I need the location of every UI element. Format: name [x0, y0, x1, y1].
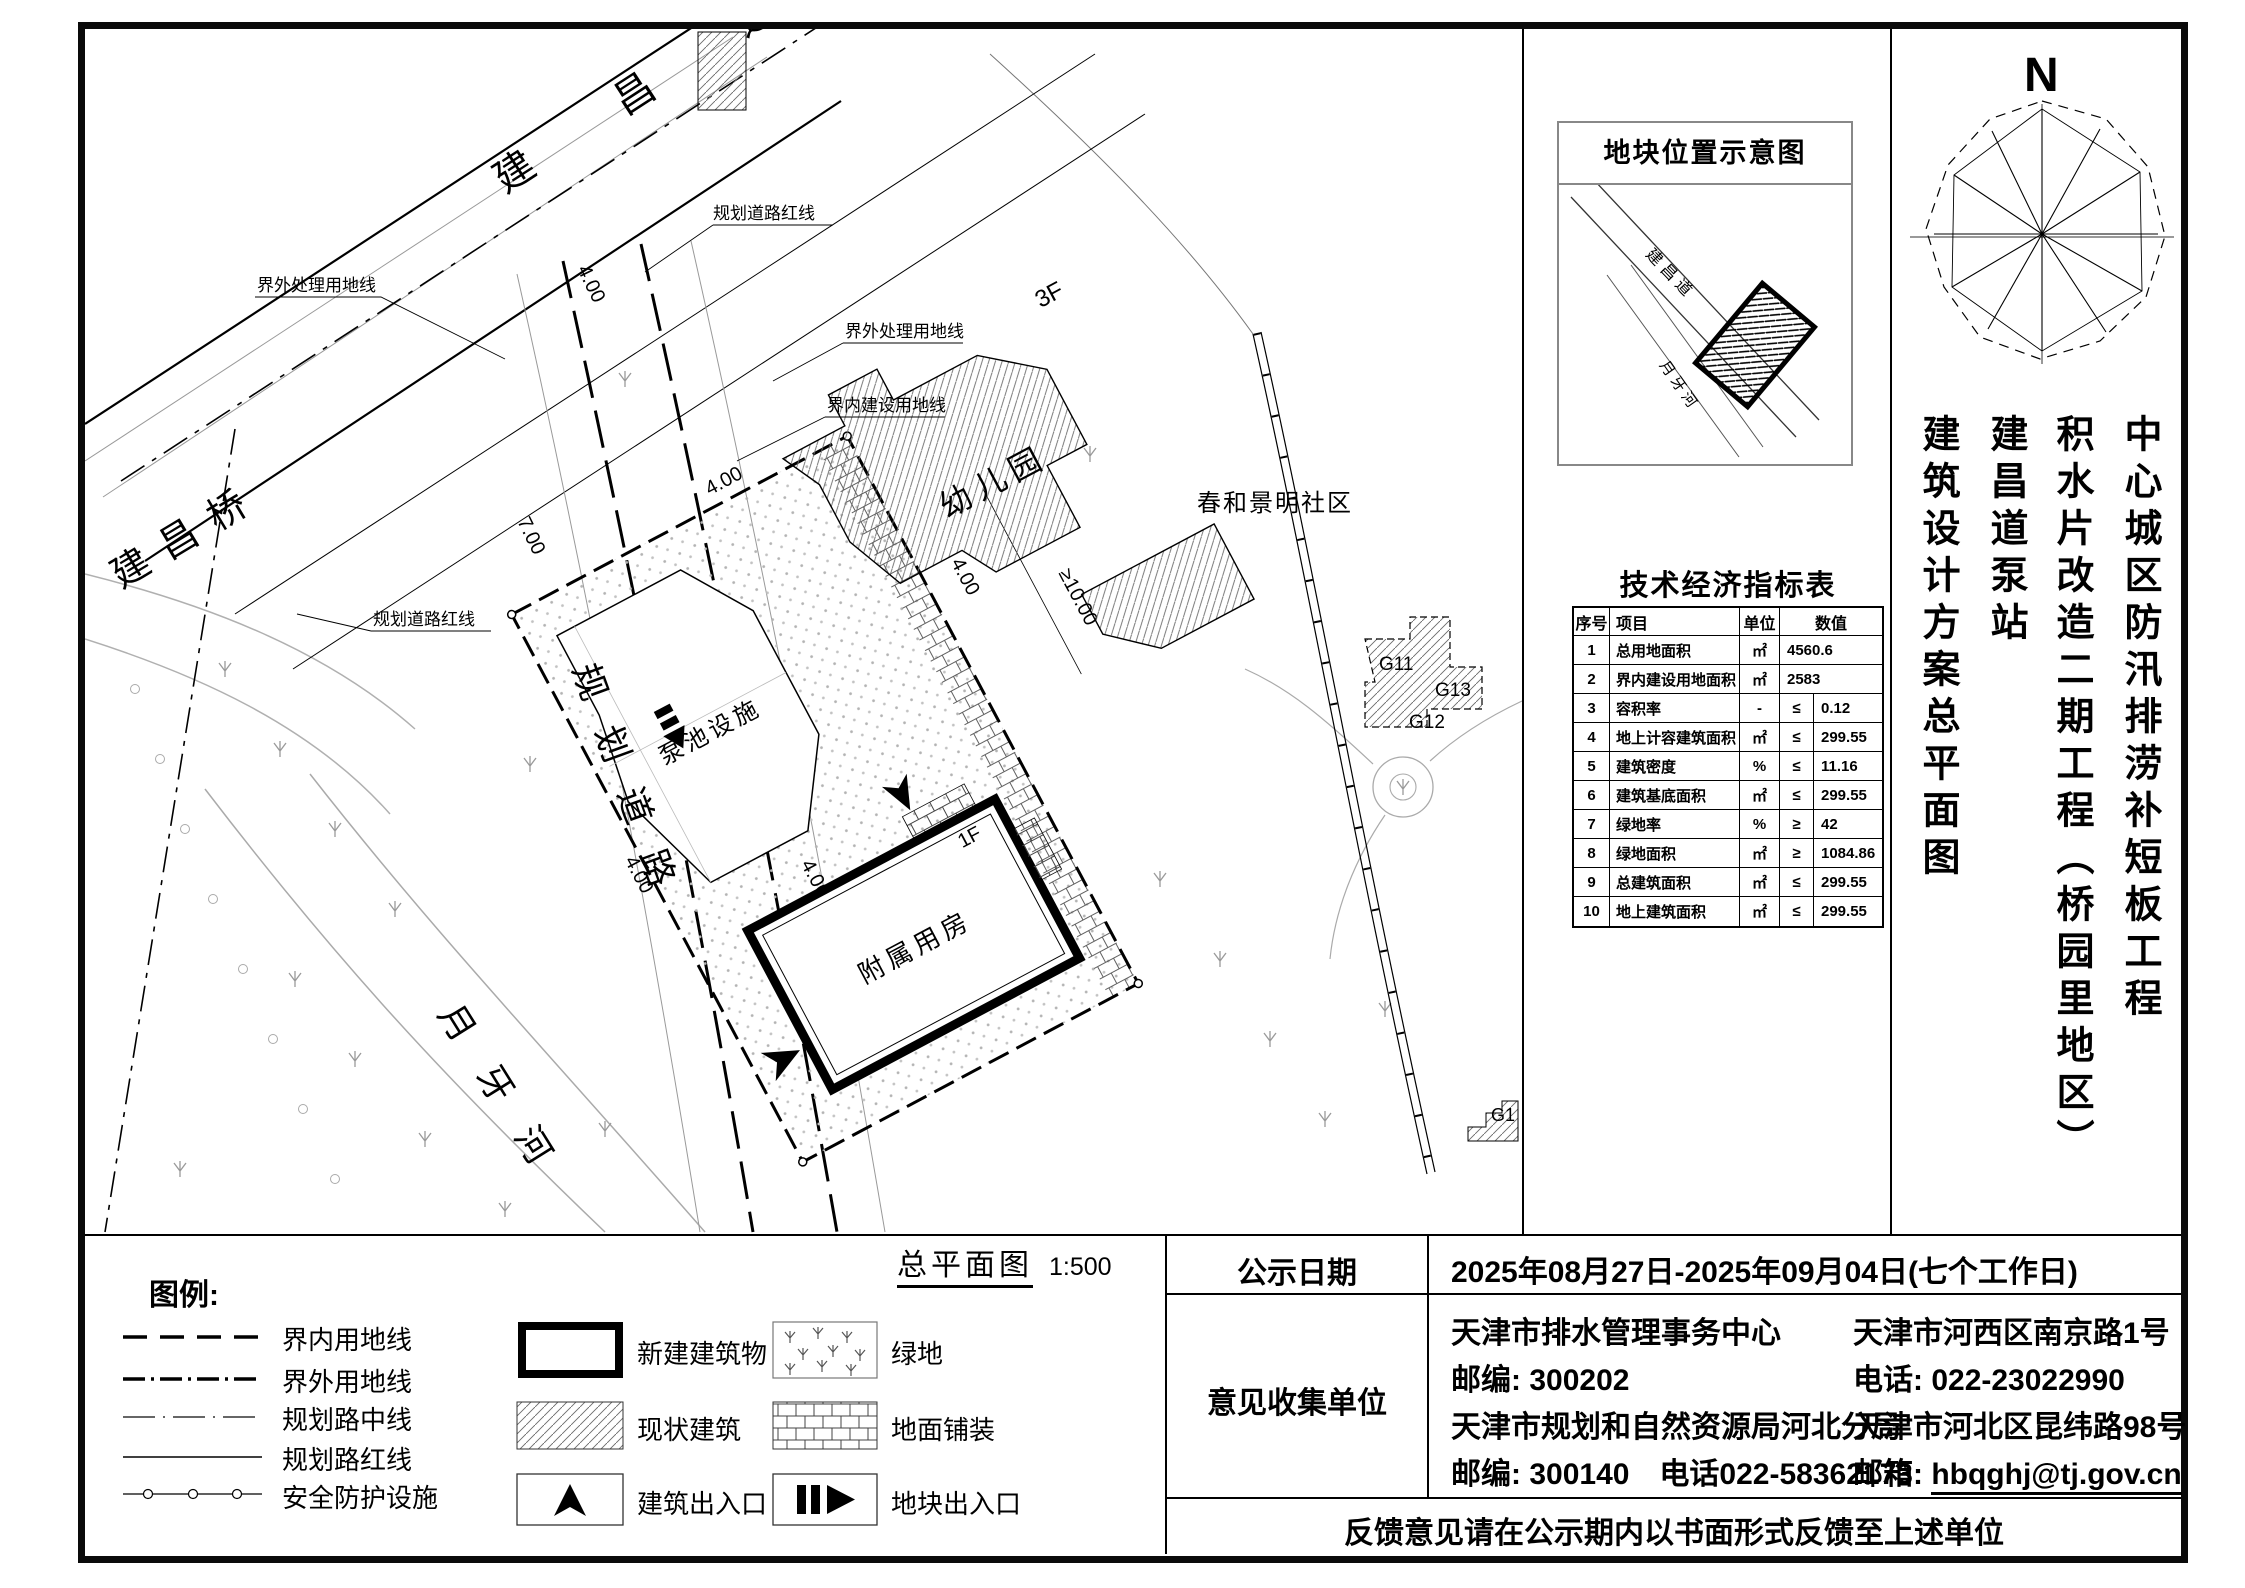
building-g11-label: G11 [1379, 654, 1414, 675]
tech-row-value: 299.55 [1814, 781, 1882, 810]
collector-address-1: 天津市河西区南京路1号 [1853, 1308, 2170, 1352]
tech-row-unit: ㎡ [1740, 897, 1780, 926]
tech-row-item: 绿地面积 [1610, 839, 1740, 868]
email-link[interactable]: hbqghj@tj.gov.cn [1931, 1458, 2181, 1495]
collector-postcode-2: 邮编: 300140 电话022-58362173 [1451, 1449, 1913, 1493]
dim-label: 4.00 [573, 262, 610, 307]
tech-row-value: 299.55 [1814, 723, 1882, 752]
tech-row-no: 5 [1574, 752, 1610, 781]
site-plan-drawing-area: 泵池设施 附属用房 1F 4.00 4.00 ≥10.00 4.00 [85, 29, 1524, 1234]
annotation-road-redline: 规划道路红线 [713, 204, 815, 223]
location-map: 建昌道 月牙河 [1559, 185, 1851, 464]
tech-row-value: 1084.86 [1814, 839, 1882, 868]
table-row-line [1167, 1497, 2181, 1499]
north-label: N [2024, 49, 2059, 102]
tech-header-unit: 单位 [1740, 608, 1780, 636]
tech-row-cmp: ≥ [1780, 810, 1814, 839]
kindergarten-floor-label: 3F [1031, 277, 1068, 314]
tech-row-no: 3 [1574, 694, 1610, 723]
building-g1-label: G1 [1491, 1105, 1515, 1125]
tech-row-unit: ㎡ [1740, 868, 1780, 897]
river-yueyahe-label: 月牙河 [430, 997, 579, 1202]
north-compass: N [1892, 29, 2181, 374]
legend-label-outer-boundary: 界外用地线 [282, 1362, 412, 1399]
publicity-date-label: 公示日期 [1167, 1248, 1427, 1292]
tech-row-no: 8 [1574, 839, 1610, 868]
community-label: 春和景明社区 [1197, 490, 1353, 517]
tech-row-item: 总建筑面积 [1610, 868, 1740, 897]
legend-label-existing-building: 现状建筑 [637, 1410, 741, 1447]
tech-row-item: 总用地面积 [1610, 636, 1740, 665]
tech-row-no: 10 [1574, 897, 1610, 926]
legend-label-new-building: 新建建筑物 [637, 1334, 767, 1371]
tech-row-unit: ㎡ [1740, 781, 1780, 810]
annotation-outer-boundary: 界外处理用地线 [257, 276, 376, 295]
tech-row-unit: - [1740, 694, 1780, 723]
collector-name-2: 天津市规划和自然资源局河北分局 [1451, 1402, 1901, 1446]
collector-postcode-1: 邮编: 300202 [1451, 1355, 1629, 1399]
tech-row-item: 地上计容建筑面积 [1610, 723, 1740, 752]
tech-row-value: 2583 [1780, 665, 1882, 694]
project-title-line-4: 建筑设计方案总平面图 [1914, 414, 1960, 884]
email-prefix: 邮箱: [1853, 1458, 1931, 1491]
road-jianchangdao-label: 建 昌 道 [486, 29, 822, 202]
tech-row-unit: ㎡ [1740, 723, 1780, 752]
tech-row-value: 42 [1814, 810, 1882, 839]
tech-row-cmp: ≤ [1780, 781, 1814, 810]
tech-row-item: 绿地率 [1610, 810, 1740, 839]
collector-label: 意见收集单位 [1167, 1378, 1427, 1422]
building-g13-label: G13 [1435, 680, 1471, 701]
legend-label-safety-fence: 安全防护设施 [282, 1478, 438, 1515]
legend-label-site-entrance: 地块出入口 [891, 1484, 1021, 1521]
legend-label-road-centerline: 规划路中线 [282, 1400, 412, 1437]
legend-label-road-redline: 规划路红线 [282, 1440, 412, 1477]
table-row-line [1167, 1293, 2181, 1295]
legend-panel: 总平面图1:500 图例: [85, 1234, 1167, 1554]
site-plan-sheet: { "north": "N", "scale": {"label": "总平面图… [0, 0, 2245, 1588]
annotation-outer-boundary: 界外处理用地线 [845, 322, 964, 341]
tech-table-title: 技术经济指标表 [1572, 562, 1884, 604]
table-divider [1427, 1236, 1429, 1497]
legend-label-building-entrance: 建筑出入口 [637, 1484, 767, 1521]
annotation-inner-boundary: 界内建设用地线 [827, 396, 946, 415]
legend-swatch-new-building [522, 1326, 619, 1374]
tech-row-value: 299.55 [1814, 897, 1882, 926]
tech-row-item: 容积率 [1610, 694, 1740, 723]
tech-row-value: 4560.6 [1780, 636, 1882, 665]
site-plan-drawing: 泵池设施 附属用房 1F 4.00 4.00 ≥10.00 4.00 [85, 29, 1522, 1234]
tech-row-item: 地上建筑面积 [1610, 897, 1740, 926]
collector-email-line: 邮箱: hbqghj@tj.gov.cn [1853, 1449, 2182, 1493]
tech-header-no: 序号 [1574, 608, 1610, 636]
location-map-title: 地块位置示意图 [1559, 123, 1851, 185]
tech-row-no: 4 [1574, 723, 1610, 752]
dim-label: 7.00 [513, 514, 550, 559]
tech-row-item: 建筑基底面积 [1610, 781, 1740, 810]
tech-row-value: 299.55 [1814, 868, 1882, 897]
tech-row-no: 1 [1574, 636, 1610, 665]
title-panel: N 中心城区防汛排涝补短板工程 积水片改造二期工程（桥园里地区） 建昌道泵站 建… [1892, 29, 2181, 1234]
tech-row-cmp: ≤ [1780, 694, 1814, 723]
collector-name-1: 天津市排水管理事务中心 [1451, 1308, 1781, 1352]
project-title-line-1: 中心城区防汛排涝补短板工程 [2116, 414, 2162, 1025]
legend-label-green-space: 绿地 [891, 1334, 943, 1371]
tech-row-unit: % [1740, 810, 1780, 839]
middle-panel: 地块位置示意图 建昌道 月牙河 技术经济指标表 序号 [1524, 29, 1892, 1234]
legend-swatch-existing-building [517, 1402, 623, 1449]
sheet-frame: 泵池设施 附属用房 1F 4.00 4.00 ≥10.00 4.00 [78, 22, 2188, 1563]
building-g12-label: G12 [1409, 712, 1445, 733]
project-title-line-3: 建昌道泵站 [1982, 414, 2028, 649]
tech-header-value: 数值 [1780, 608, 1882, 636]
tech-row-unit: ㎡ [1740, 665, 1780, 694]
tech-row-unit: ㎡ [1740, 636, 1780, 665]
legend-swatch-green-space [773, 1322, 877, 1378]
tech-row-cmp: ≤ [1780, 868, 1814, 897]
tech-row-item: 建筑密度 [1610, 752, 1740, 781]
legend-label-inner-boundary: 界内用地线 [282, 1320, 412, 1357]
notice-table: 公示日期 2025年08月27日-2025年09月04日(七个工作日) 意见收集… [1167, 1234, 2181, 1554]
publicity-date-value: 2025年08月27日-2025年09月04日(七个工作日) [1451, 1247, 2078, 1291]
legend-label-paving: 地面铺装 [891, 1410, 995, 1447]
tech-header-item: 项目 [1610, 608, 1740, 636]
project-title-line-2: 积水片改造二期工程（桥园里地区） [2048, 414, 2094, 1166]
tech-row-value: 0.12 [1814, 694, 1882, 723]
tech-row-cmp: ≤ [1780, 752, 1814, 781]
tech-row-value: 11.16 [1814, 752, 1882, 781]
tech-row-item: 界内建设用地面积 [1610, 665, 1740, 694]
location-map-box: 地块位置示意图 建昌道 月牙河 [1557, 121, 1853, 466]
tech-row-no: 9 [1574, 868, 1610, 897]
collector-address-2: 天津市河北区昆纬路98号 [1853, 1402, 2186, 1446]
feedback-note: 反馈意见请在公示期内以书面形式反馈至上述单位 [1167, 1508, 2181, 1552]
collector-phone-1: 电话: 022-23022990 [1853, 1355, 2125, 1399]
tech-row-cmp: ≤ [1780, 897, 1814, 926]
legend-swatch-site-entrance [773, 1474, 877, 1525]
bridge-jianchangqiao-label: 建昌桥 [104, 474, 270, 597]
tech-row-no: 6 [1574, 781, 1610, 810]
legend-swatch-paving [773, 1402, 877, 1449]
tech-table: 序号 项目 单位 数值 1 总用地面积 ㎡ 4560.6 2 界内建设用地面积 … [1572, 606, 1884, 928]
tech-row-no: 7 [1574, 810, 1610, 839]
map-road-label: 建昌道 [1642, 245, 1699, 303]
tech-row-unit: ㎡ [1740, 839, 1780, 868]
tech-row-no: 2 [1574, 665, 1610, 694]
tech-row-unit: % [1740, 752, 1780, 781]
annotation-road-redline: 规划道路红线 [373, 610, 475, 629]
tech-row-cmp: ≤ [1780, 723, 1814, 752]
tech-row-cmp: ≥ [1780, 839, 1814, 868]
